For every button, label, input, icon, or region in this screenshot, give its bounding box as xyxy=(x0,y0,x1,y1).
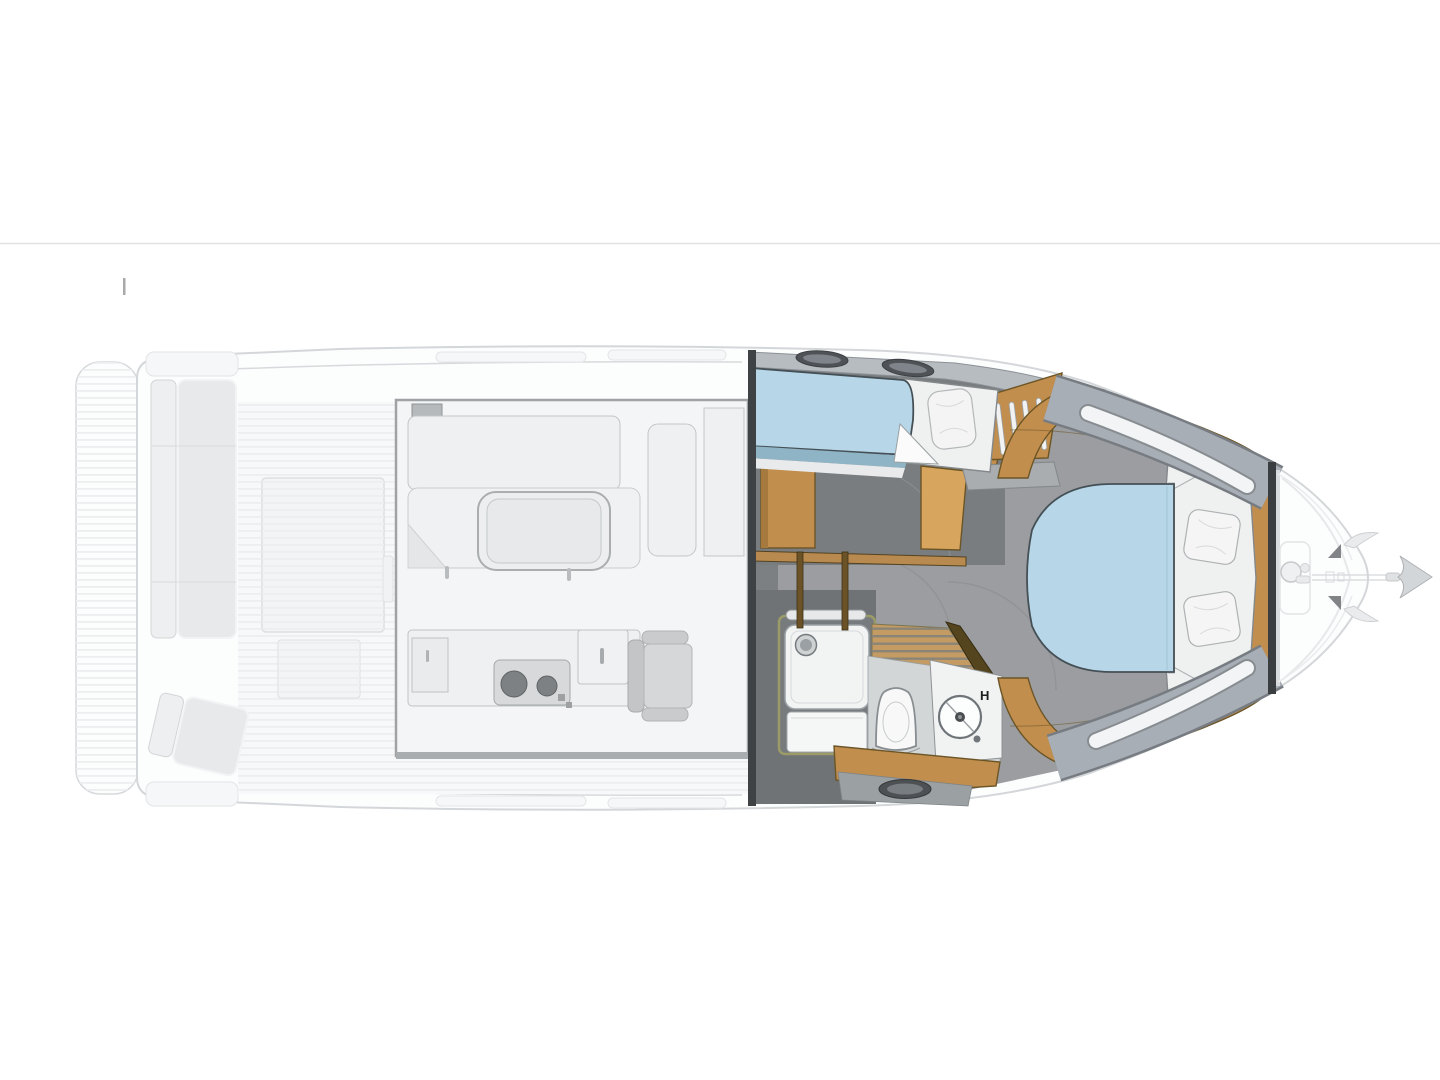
helm-seat-cushion xyxy=(644,644,692,708)
roof-rail-top-1 xyxy=(436,352,586,362)
salon-table-inner xyxy=(487,499,601,563)
companionway-divider xyxy=(748,350,756,806)
wardrobe-port-edge xyxy=(761,464,768,548)
galley-appliance xyxy=(412,638,448,692)
roof-rail-top-2 xyxy=(608,350,726,360)
stern-bench xyxy=(151,380,236,638)
wardrobe-mid xyxy=(921,466,967,550)
sink-hot-label: H xyxy=(980,688,989,703)
sink-drain xyxy=(974,736,981,743)
stern-bench-back xyxy=(151,380,176,638)
stove-knob-1 xyxy=(558,694,565,701)
master-pillow-2 xyxy=(1182,590,1241,648)
roof-rail-bottom-1 xyxy=(436,796,586,806)
aft-berth-mattress xyxy=(750,368,913,455)
appliance-handle xyxy=(426,650,429,662)
aft-berth-pillow xyxy=(927,388,978,451)
helm-armrest-top xyxy=(642,631,688,644)
settee-back xyxy=(408,416,620,490)
lower-deck: H xyxy=(748,349,1280,806)
measure-tick xyxy=(123,278,126,295)
galley xyxy=(408,630,640,708)
salon xyxy=(396,400,748,759)
stove-burner-large xyxy=(501,671,527,697)
locker-handle xyxy=(600,648,604,664)
transom-step-bottom xyxy=(146,782,238,806)
toilet xyxy=(876,688,916,750)
boat-floorplan: H xyxy=(0,0,1440,1080)
head-door-post-1 xyxy=(797,552,803,628)
windlass-motor xyxy=(1296,576,1310,583)
settee-chaise xyxy=(648,424,696,556)
anchor-icon xyxy=(1398,556,1432,598)
cockpit-table-slats xyxy=(262,478,384,632)
table-side-tab xyxy=(383,556,393,602)
master-mattress xyxy=(1027,484,1174,672)
wardrobe-port xyxy=(761,464,815,548)
head-door-post-2 xyxy=(842,552,848,630)
lower-bench-seat xyxy=(172,696,250,777)
side-cabinet xyxy=(704,408,744,556)
stove-burner-small xyxy=(537,676,557,696)
roof-rail-bottom-2 xyxy=(608,798,726,808)
cockpit-table-extension-slats xyxy=(278,640,360,698)
stern-bench-seat xyxy=(178,380,236,638)
transom-step-top xyxy=(146,352,238,376)
salon-aft-wall xyxy=(396,752,748,759)
helm-seat xyxy=(628,631,692,721)
shower-drain-inner xyxy=(800,639,812,651)
master-pillow-1 xyxy=(1182,508,1241,566)
stove-knob-2 xyxy=(566,702,572,708)
swim-platform-teak xyxy=(76,362,138,794)
helm-armrest-bottom xyxy=(642,708,688,721)
floor-latch-1 xyxy=(445,566,449,579)
sink-faucet-cap xyxy=(958,715,962,719)
floor-latch-2 xyxy=(567,568,571,581)
windlass-gypsy xyxy=(1301,564,1310,573)
forward-bulkhead xyxy=(1268,462,1276,694)
helm-seat-back xyxy=(628,640,644,712)
deck-hatch-inner xyxy=(887,784,923,795)
